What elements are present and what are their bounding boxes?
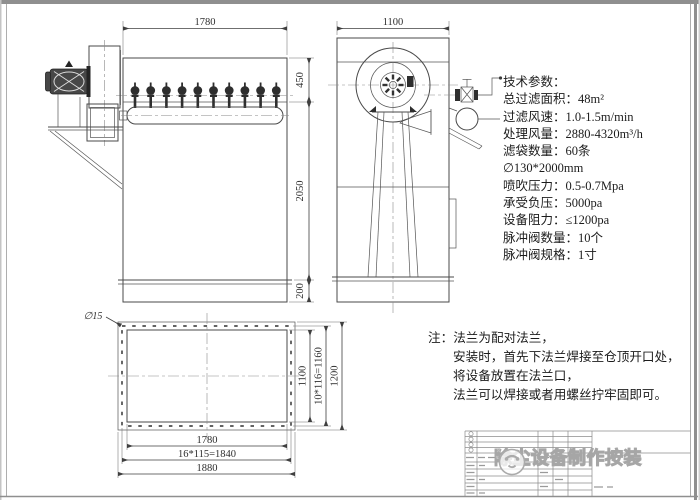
front-view — [46, 40, 295, 302]
tech-param-line: 脉冲阀数量：10个 — [503, 230, 695, 247]
note-line: 安装时，首先下法兰焊接至仓顶开口处， — [453, 348, 693, 367]
dim-side-width: 1100 — [383, 17, 404, 28]
note-line: 将设备放置在法兰口， — [453, 367, 693, 386]
note-line: 法兰可以焊接或者用螺丝拧牢固即可。 — [453, 386, 693, 405]
support-platform — [48, 127, 123, 189]
dim-front-height-flange: 200 — [295, 283, 306, 299]
technical-parameters: 技术参数： 总过滤面积：48m² 过滤风速：1.0-1.5m/min 处理风量：… — [503, 74, 695, 264]
title-block — [465, 431, 691, 497]
dim-plan-bolt-width: 16*115=1840 — [178, 449, 236, 460]
dim-plan-bolt-height: 10*116=1160 — [314, 347, 325, 405]
engineering-drawing-page: 1780 450 2050 200 — [0, 0, 700, 500]
dim-plan-outer-width: 1880 — [197, 463, 218, 474]
air-manifold — [120, 107, 290, 124]
dim-plan-outer-height: 1200 — [330, 366, 341, 387]
dim-plan-inner-height: 1100 — [298, 366, 309, 387]
tech-param-line: 设备阻力：≤1200pa — [503, 212, 695, 229]
fan-scroll — [356, 48, 431, 135]
dim-front-width: 1780 — [195, 17, 216, 28]
side-view-dimensions: 1100 — [337, 17, 449, 35]
tech-param-line: 脉冲阀规格：1寸 — [503, 247, 695, 264]
tech-param-line: 承受负压：5000pa — [503, 195, 695, 212]
tech-params-title: 技术参数： — [503, 74, 695, 91]
pulse-valve-assembly — [424, 76, 502, 149]
installation-notes: 注：法兰为配对法兰， 安装时，首先下法兰焊接至仓顶开口处， 将设备放置在法兰口，… — [428, 329, 693, 405]
access-door-handle — [449, 199, 456, 248]
tech-param-line: 滤袋数量：60条 — [503, 143, 695, 160]
tech-param-line: ∅130*2000mm — [503, 160, 695, 177]
dim-front-height-top: 450 — [295, 72, 306, 88]
tech-param-line: 处理风量：2880-4320m³/h — [503, 126, 695, 143]
title-block-fine-text — [466, 458, 613, 494]
tech-param-line: 喷吹压力：0.5-0.7Mpa — [503, 178, 695, 195]
rotation-arrow-icon — [65, 61, 73, 68]
bolt-holes-pattern — [122, 326, 291, 426]
dim-plan-inner-width: 1780 — [197, 435, 218, 446]
tech-param-line: 过滤风速：1.0-1.5m/min — [503, 109, 695, 126]
front-view-dimensions: 1780 450 2050 200 — [123, 17, 314, 302]
dim-bolt-hole-diameter: ∅15 — [84, 311, 103, 322]
plan-view-dimensions: 1100 10*116=1160 1200 1780 16*115=1840 1… — [118, 322, 347, 478]
side-view — [328, 38, 502, 315]
note-line: 注：法兰为配对法兰， — [428, 329, 693, 348]
tech-param-line: 总过滤面积：48m² — [503, 91, 695, 108]
plan-view-flange: ∅15 — [84, 311, 304, 440]
dim-front-height-body: 2050 — [295, 181, 306, 202]
